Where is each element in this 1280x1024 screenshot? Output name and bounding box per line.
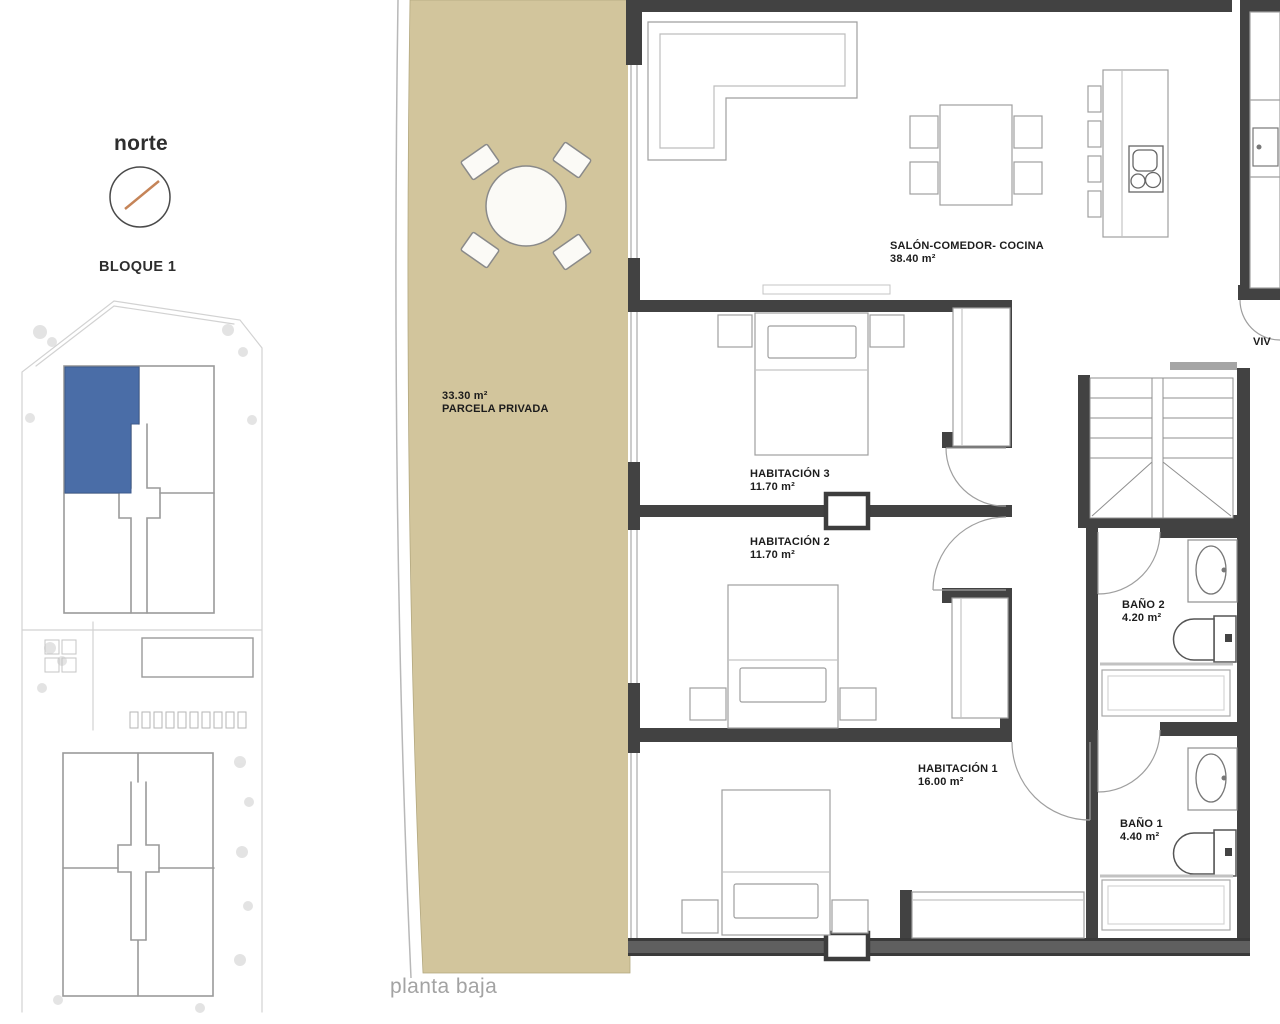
site-plan-diagram: [22, 301, 262, 1013]
adjacent-unit-label: VIV: [1253, 336, 1271, 348]
wardrobe-symbols: [912, 308, 1084, 938]
room-label-salon: SALÓN-COMEDOR- COCINA 38.40 m²: [890, 240, 1044, 266]
terrace-name: PARCELA PRIVADA: [442, 403, 549, 416]
site-pool: [142, 638, 253, 677]
room-label-hab2: HABITACIÓN 2 11.70 m²: [750, 536, 830, 562]
compass-icon: [110, 167, 170, 227]
basin-cabinet: [1188, 748, 1237, 810]
dining-table-symbol: [910, 105, 1042, 205]
site-block-lower: [63, 753, 214, 996]
terrace-area: 33.30 m²: [442, 390, 549, 403]
bed-symbol-hab1: [682, 790, 868, 935]
stairs-symbol: [1090, 378, 1233, 518]
shower-tray: [1102, 880, 1230, 930]
room-label-hab1: HABITACIÓN 1 16.00 m²: [918, 763, 998, 789]
site-plan-title: BLOQUE 1: [99, 259, 176, 275]
sofa-symbol: [648, 22, 857, 160]
bed-symbol-hab3: [718, 313, 904, 455]
floorplan-drawing: [0, 0, 1280, 1024]
shower-tray: [1102, 670, 1230, 716]
site-parking-row: [130, 712, 246, 728]
floor-caption: planta baja: [390, 975, 497, 999]
wall-pillar-box: [826, 933, 868, 959]
hab2-door-arc: [933, 517, 1006, 590]
entrance-door-arc: [1240, 300, 1280, 340]
bottom-wall: [628, 938, 1250, 956]
stair-landing-edge: [1170, 362, 1237, 370]
terrace-area: [408, 0, 630, 973]
room-label-hab3: HABITACIÓN 3 11.70 m²: [750, 468, 830, 494]
room-label-bano2: BAÑO 2 4.20 m²: [1122, 599, 1165, 625]
site-trees: [25, 324, 257, 1013]
compass-label: norte: [114, 132, 168, 156]
basin-cabinet: [1188, 540, 1237, 602]
hab1-door-arc: [1012, 742, 1090, 820]
bano2-fixtures: [1100, 540, 1237, 716]
floorplan-page: norte BLOQUE 1 33.30 m² PARCELA PRIVADA …: [0, 0, 1280, 1024]
terrace-label: 33.30 m² PARCELA PRIVADA: [442, 390, 549, 416]
bed-symbol-hab2: [690, 585, 876, 728]
room-label-bano1: BAÑO 1 4.40 m²: [1120, 818, 1163, 844]
rug-symbol: [763, 285, 890, 294]
top-wall-joint: [1232, 0, 1240, 12]
bano1-door-arc: [1098, 730, 1160, 792]
bano2-door-arc: [1098, 532, 1160, 594]
hab3-door-arc: [946, 448, 1006, 506]
wall-pillar-box: [826, 494, 868, 528]
highlighted-unit: [65, 367, 139, 493]
sink-icon: [1253, 128, 1278, 166]
